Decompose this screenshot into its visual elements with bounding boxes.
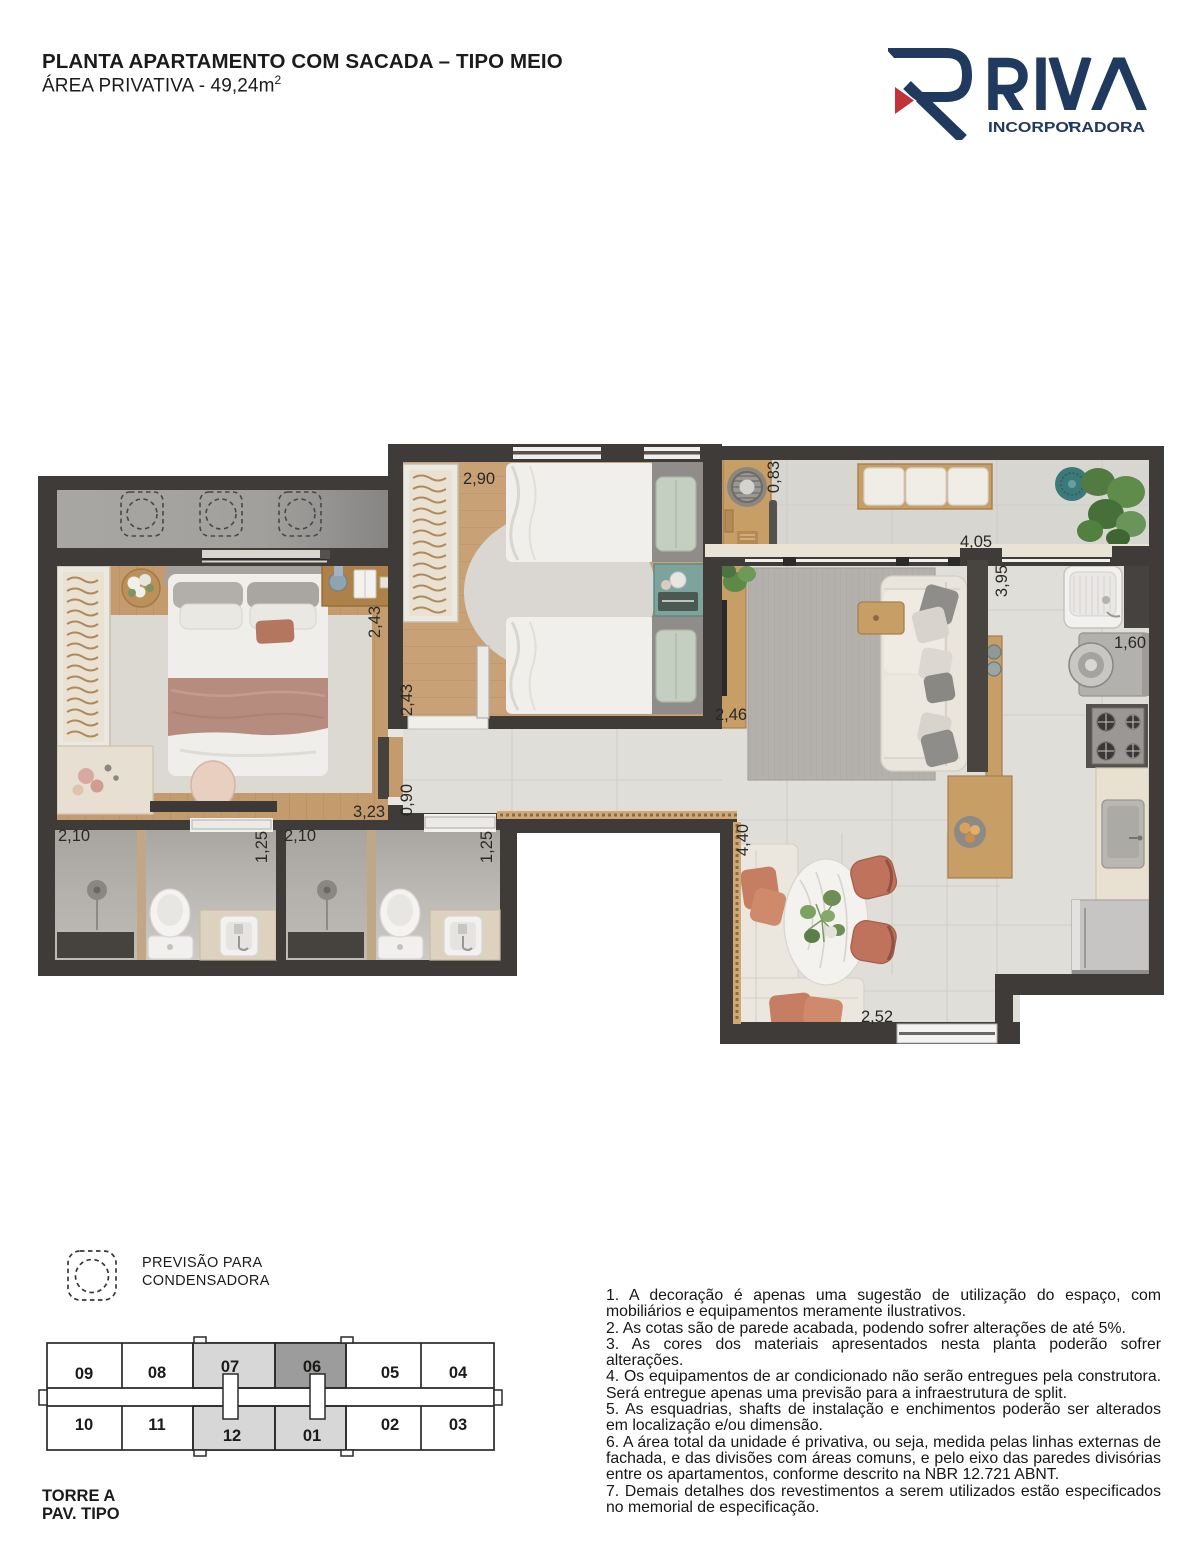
svg-text:3,23: 3,23 bbox=[353, 803, 385, 821]
svg-text:1,25: 1,25 bbox=[478, 831, 496, 863]
svg-text:07: 07 bbox=[221, 1358, 239, 1376]
svg-text:04: 04 bbox=[449, 1364, 468, 1382]
svg-text:06: 06 bbox=[303, 1358, 321, 1376]
svg-text:01: 01 bbox=[303, 1427, 321, 1445]
svg-text:1,60: 1,60 bbox=[1114, 634, 1146, 652]
svg-text:03: 03 bbox=[449, 1416, 467, 1434]
svg-text:10: 10 bbox=[75, 1416, 93, 1434]
svg-text:2,43: 2,43 bbox=[398, 684, 416, 716]
svg-text:4,40: 4,40 bbox=[734, 824, 752, 856]
svg-text:2,52: 2,52 bbox=[861, 1008, 893, 1026]
svg-text:02: 02 bbox=[381, 1416, 399, 1434]
svg-text:2,10: 2,10 bbox=[58, 827, 90, 845]
svg-text:08: 08 bbox=[148, 1364, 166, 1382]
svg-text:11: 11 bbox=[148, 1416, 165, 1434]
svg-text:2,46: 2,46 bbox=[715, 706, 747, 724]
svg-text:05: 05 bbox=[381, 1364, 399, 1382]
svg-text:4,05: 4,05 bbox=[960, 533, 992, 551]
svg-text:2,10: 2,10 bbox=[284, 827, 316, 845]
svg-text:09: 09 bbox=[75, 1365, 93, 1383]
svg-text:2,90: 2,90 bbox=[463, 470, 495, 488]
svg-text:0,90: 0,90 bbox=[398, 784, 416, 816]
svg-text:3,95: 3,95 bbox=[993, 565, 1011, 597]
svg-text:1,25: 1,25 bbox=[253, 831, 271, 863]
svg-text:2,43: 2,43 bbox=[366, 606, 384, 638]
svg-text:0,83: 0,83 bbox=[765, 461, 783, 493]
svg-text:12: 12 bbox=[223, 1427, 241, 1445]
